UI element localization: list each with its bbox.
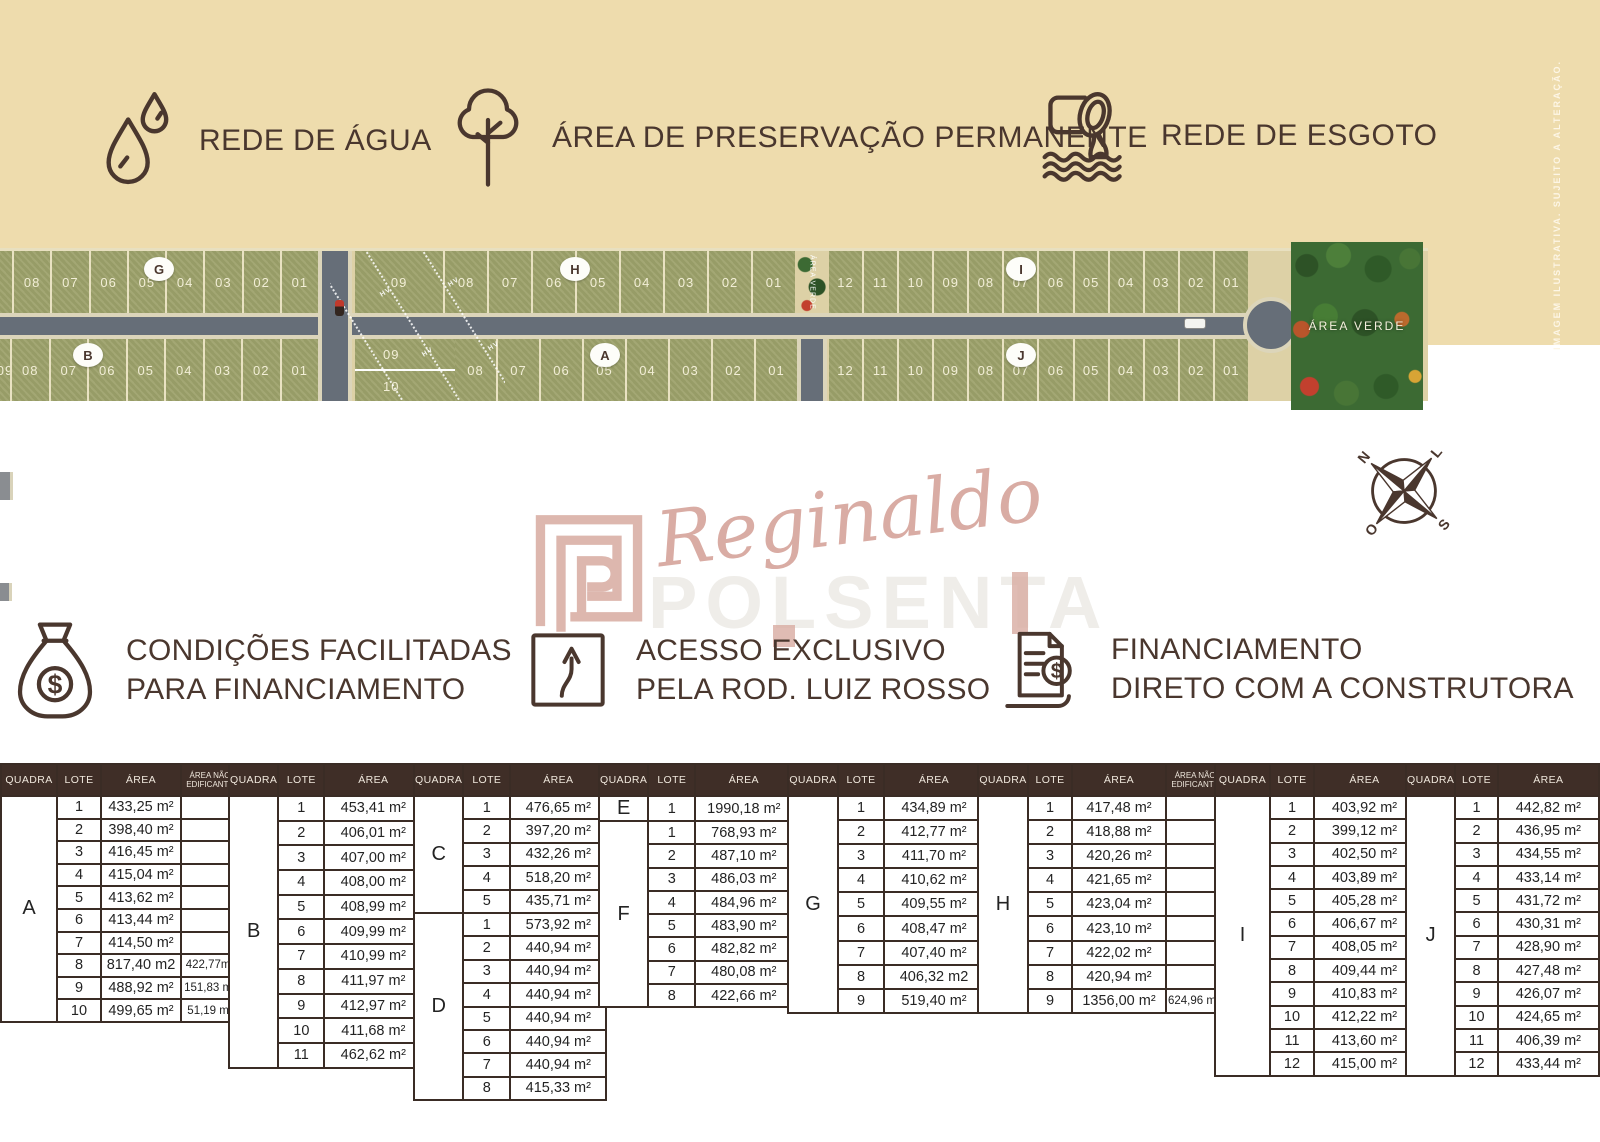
area-cell: 407,00 m²	[324, 845, 422, 870]
area-verde-forest: ÁREA VERDE	[1291, 242, 1423, 410]
lote-cell: 4	[463, 983, 510, 1006]
benefit-financing-conditions: $ CONDIÇÕES FACILITADAS PARA FINANCIAMEN…	[12, 618, 512, 722]
map-lot: 12	[829, 251, 864, 313]
quadra-label-cell: I	[1215, 796, 1270, 1076]
table-header-cell: LOTE	[278, 764, 324, 796]
map-lot: 05	[128, 339, 167, 401]
lote-cell: 11	[278, 1043, 324, 1068]
main-road	[0, 313, 1254, 339]
area-cell: 480,08 m²	[695, 961, 792, 984]
quadra-badge-I: I	[1006, 257, 1036, 281]
lote-cell: 4	[1028, 868, 1072, 892]
map-lot: 08	[969, 339, 1004, 401]
area-cell: 410,62 m²	[884, 868, 984, 892]
map-lot: 02	[713, 339, 756, 401]
lote-cell: 9	[1455, 982, 1497, 1005]
compass-south-label: S	[1435, 516, 1453, 534]
area-cell: 410,83 m²	[1314, 982, 1415, 1005]
map-lot: 03	[1145, 339, 1180, 401]
area-cell: 1990,18 m²	[695, 796, 792, 821]
map-lot: 06	[91, 251, 129, 313]
lote-cell: 1	[1028, 796, 1072, 820]
area-cell: 499,65 m²	[101, 999, 181, 1022]
lote-cell: 5	[278, 895, 324, 920]
map-lot: 01	[756, 339, 797, 401]
area-cell: 421,65 m²	[1072, 868, 1166, 892]
compass-rose: N L S O	[1345, 432, 1463, 555]
table-row: J1442,82 m²	[1406, 796, 1599, 819]
lote-cell: 1	[463, 796, 510, 819]
map-lot: 04	[166, 339, 205, 401]
table-header-cell: ÁREA	[1072, 764, 1166, 796]
area-cell: 434,55 m²	[1498, 843, 1599, 866]
area-cell: 484,96 m²	[695, 891, 792, 914]
lote-cell: 2	[463, 819, 510, 842]
table-row: D1573,92 m²	[414, 913, 606, 936]
table-row: C1476,65 m²	[414, 796, 606, 819]
area-cell: 406,39 m²	[1498, 1029, 1599, 1052]
map-lot: 02	[244, 251, 282, 313]
lote-cell: 11	[1270, 1029, 1314, 1052]
area-cell: 482,82 m²	[695, 937, 792, 960]
table-header-cell: QUADRA	[1215, 764, 1270, 796]
lote-cell: 7	[57, 932, 101, 955]
lote-cell: 6	[838, 916, 884, 940]
map-lot: 02	[1180, 339, 1215, 401]
lote-cell: 8	[57, 954, 101, 977]
area-cell: 412,22 m²	[1314, 1006, 1415, 1029]
benefit-line: PELA ROD. LUIZ ROSSO	[636, 670, 990, 709]
lote-cell: 9	[57, 977, 101, 1000]
lote-cell: 3	[463, 843, 510, 866]
table-header-cell: LOTE	[1455, 764, 1497, 796]
map-lot: 07	[52, 251, 90, 313]
benefit-line: ACESSO EXCLUSIVO	[636, 631, 990, 670]
lote-cell: 4	[463, 866, 510, 889]
area-cell: 486,03 m²	[695, 868, 792, 891]
table-row: E11990,18 m²	[599, 796, 792, 821]
map-lot: 06	[1039, 339, 1074, 401]
area-cell: 420,26 m²	[1072, 844, 1166, 868]
table-header-cell: ÁREA	[101, 764, 181, 796]
area-cell: 413,60 m²	[1314, 1029, 1415, 1052]
lote-cell: 2	[648, 844, 695, 867]
lote-cell: 1	[838, 796, 884, 820]
area-cell: 428,90 m²	[1498, 936, 1599, 959]
map-lot: 01	[1215, 251, 1248, 313]
lote-cell: 2	[278, 821, 324, 846]
lote-cell: 7	[648, 961, 695, 984]
lote-cell: 6	[463, 1030, 510, 1053]
area-cell: 422,02 m²	[1072, 941, 1166, 965]
area-cell: 440,94 m²	[510, 936, 606, 959]
quadra-table-J: QUADRALOTEÁREAJ1442,82 m²2436,95 m²3434,…	[1405, 763, 1600, 1077]
benefit-exclusive-access: ACESSO EXCLUSIVO PELA ROD. LUIZ ROSSO	[528, 630, 990, 710]
lote-cell: 8	[1270, 959, 1314, 982]
area-cell: 415,33 m²	[510, 1077, 606, 1100]
lote-cell: 3	[463, 960, 510, 983]
table-header-cell: QUADRA	[599, 764, 648, 796]
table-header-cell: LOTE	[648, 764, 695, 796]
map-lot: 07	[489, 251, 533, 313]
map-lot: 01	[282, 251, 318, 313]
cross-road-right	[797, 339, 827, 401]
area-cell: 399,12 m²	[1314, 819, 1415, 842]
lote-cell: 7	[1455, 936, 1497, 959]
map-lot: 04	[627, 339, 670, 401]
area-cell: 406,01 m²	[324, 821, 422, 846]
lote-cell: 6	[1455, 912, 1497, 935]
lote-cell: 8	[838, 965, 884, 989]
lote-cell: 7	[838, 941, 884, 965]
area-cell: 476,65 m²	[510, 796, 606, 819]
sewage-pipe-icon	[1035, 88, 1135, 184]
area-cell: 408,47 m²	[884, 916, 984, 940]
map-edge-remnant	[0, 583, 12, 601]
table-header-cell: ÁREA	[1314, 764, 1415, 796]
area-cell: 442,82 m²	[1498, 796, 1599, 819]
table-header-cell: ÁREA	[1498, 764, 1599, 796]
area-cell: 413,44 m²	[101, 909, 181, 932]
benefit-direct-financing: $ FINANCIAMENTO DIRETO COM A CONSTRUTORA	[995, 622, 1574, 716]
table-row: A1433,25 m²	[1, 796, 239, 819]
area-cell: 412,97 m²	[324, 994, 422, 1019]
cross-road-left	[318, 251, 352, 401]
lote-cell: 10	[278, 1018, 324, 1043]
area-cell: 416,45 m²	[101, 841, 181, 864]
disclaimer-text: IMAGEM ILUSTRATIVA. SUJEITO A ALTERAÇÃO.	[1552, 60, 1562, 350]
map-lot: 01	[282, 339, 319, 401]
area-verde-strip-label: ÁREA VERDE	[809, 255, 816, 310]
area-cell: 408,99 m²	[324, 895, 422, 920]
area-cell: 462,62 m²	[324, 1043, 422, 1068]
map-lot: 10	[899, 339, 934, 401]
area-cell: 440,94 m²	[510, 1007, 606, 1030]
table-header-cell: QUADRA	[788, 764, 838, 796]
lote-cell: 1	[463, 913, 510, 936]
area-cell: 434,89 m²	[884, 796, 984, 820]
lote-cell: 9	[838, 989, 884, 1013]
area-cell: 519,40 m²	[884, 989, 984, 1013]
money-bag-icon: $	[12, 618, 98, 722]
map-lot: 03	[670, 339, 713, 401]
table-header-cell: QUADRA	[1406, 764, 1455, 796]
area-cell: 405,28 m²	[1314, 889, 1415, 912]
area-cell: 518,20 m²	[510, 866, 606, 889]
area-cell: 412,77 m²	[884, 820, 984, 844]
map-lot: 09	[0, 339, 12, 401]
lote-cell: 1	[1270, 796, 1314, 819]
quadra-badge-A: A	[590, 343, 620, 367]
map-lot: 08	[12, 339, 51, 401]
table-header-cell: LOTE	[463, 764, 510, 796]
quadra-label-cell: E	[599, 796, 648, 821]
map-lot: 09	[934, 339, 969, 401]
area-cell: 420,94 m²	[1072, 965, 1166, 989]
legend-label-water: REDE DE ÁGUA	[199, 124, 432, 158]
lote-cell: 1	[648, 821, 695, 844]
map-lot: 05	[1075, 339, 1110, 401]
area-cell: 426,07 m²	[1498, 982, 1599, 1005]
table-header-cell: ÁREA	[695, 764, 792, 796]
lote-cell: 9	[1028, 989, 1072, 1013]
quadra-table-CD: QUADRALOTEÁREAC1476,65 m²2397,20 m²3432,…	[413, 763, 607, 1101]
area-cell: 411,70 m²	[884, 844, 984, 868]
lote-cell: 2	[838, 820, 884, 844]
legend-label-sewage: REDE DE ESGOTO	[1161, 119, 1438, 153]
lot-tables: QUADRALOTEÁREAÁREA NÃO EDIFICANTEA1433,2…	[0, 763, 1600, 1108]
area-cell: 408,00 m²	[324, 870, 422, 895]
lote-cell: 2	[57, 819, 101, 842]
map-lot: 10	[899, 251, 934, 313]
table-header-cell: QUADRA	[414, 764, 463, 796]
quadra-badge-B: B	[73, 343, 103, 367]
map-lot: 01	[1215, 339, 1248, 401]
area-cell: 413,62 m²	[101, 886, 181, 909]
map-lot: 11	[864, 339, 899, 401]
area-cell: 406,67 m²	[1314, 912, 1415, 935]
map-lot: 04	[1110, 339, 1145, 401]
area-cell: 410,99 m²	[324, 944, 422, 969]
area-cell: 423,10 m²	[1072, 916, 1166, 940]
area-cell: 817,40 m2	[101, 954, 181, 977]
quadra-label-cell: G	[788, 796, 838, 1013]
lote-cell: 8	[648, 984, 695, 1007]
table-row: F1768,93 m²	[599, 821, 792, 844]
quadra-label-cell: C	[414, 796, 463, 913]
lote-cell: 7	[1270, 936, 1314, 959]
area-cell: 422,66 m²	[695, 984, 792, 1007]
area-cell: 433,25 m²	[101, 796, 181, 819]
lote-cell: 5	[463, 1007, 510, 1030]
table-header-cell: LOTE	[1028, 764, 1072, 796]
area-cell: 414,50 m²	[101, 932, 181, 955]
lote-cell: 5	[838, 892, 884, 916]
area-verde-strip: ÁREA VERDE	[795, 251, 829, 313]
map-lot: 08	[455, 339, 498, 401]
area-cell: 440,94 m²	[510, 983, 606, 1006]
area-cell: 433,44 m²	[1498, 1052, 1599, 1075]
lote-cell: 8	[463, 1077, 510, 1100]
quadra-table-B: QUADRALOTEÁREAB1453,41 m²2406,01 m²3407,…	[228, 763, 423, 1069]
area-cell: 453,41 m²	[324, 796, 422, 821]
quadra-badge-H: H	[560, 257, 590, 281]
map-lot: 08	[969, 251, 1004, 313]
table-header-cell: ÁREA	[510, 764, 606, 796]
legend-item-sewage: REDE DE ESGOTO	[1035, 88, 1438, 184]
map-lot: 03	[665, 251, 709, 313]
quadra-label-cell: A	[1, 796, 57, 1022]
map-lot: 02	[1180, 251, 1215, 313]
benefit-line: PARA FINANCIAMENTO	[126, 670, 512, 709]
lote-cell: 5	[57, 886, 101, 909]
lote-cell: 4	[1270, 866, 1314, 889]
water-drops-icon	[95, 88, 173, 194]
map-lot: 02	[709, 251, 753, 313]
area-cell: 403,89 m²	[1314, 866, 1415, 889]
lote-cell: 10	[57, 999, 101, 1022]
lote-cell: 4	[278, 870, 324, 895]
table-header-cell: LOTE	[57, 764, 101, 796]
area-cell: 440,94 m²	[510, 960, 606, 983]
quadra-label-cell: D	[414, 913, 463, 1100]
company-logo-watermark	[533, 512, 645, 632]
area-cell: 423,04 m²	[1072, 892, 1166, 916]
table-header-cell: ÁREA	[324, 764, 422, 796]
lote-cell: 10	[1455, 1006, 1497, 1029]
area-cell: 398,40 m²	[101, 819, 181, 842]
area-cell: 431,72 m²	[1498, 889, 1599, 912]
area-cell: 430,31 m²	[1498, 912, 1599, 935]
map-lot: 11	[864, 251, 899, 313]
quadra-badge-G: G	[144, 257, 174, 281]
quadra-table-I: QUADRALOTEÁREAI1403,92 m²2399,12 m²3402,…	[1214, 763, 1416, 1077]
table-row: H1417,48 m²	[978, 796, 1224, 820]
lote-cell: 9	[1270, 982, 1314, 1005]
map-lot: 03	[205, 251, 243, 313]
area-cell: 436,95 m²	[1498, 819, 1599, 842]
lote-cell: 8	[1028, 965, 1072, 989]
area-cell: 1356,00 m²	[1072, 989, 1166, 1013]
area-cell: 440,94 m²	[510, 1053, 606, 1076]
area-verde-forest-label: ÁREA VERDE	[1309, 319, 1406, 333]
lote-cell: 6	[278, 919, 324, 944]
area-cell: 415,00 m²	[1314, 1052, 1415, 1075]
quadra-label-cell: B	[229, 796, 278, 1068]
lote-cell: 11	[1455, 1029, 1497, 1052]
lote-cell: 8	[1455, 959, 1497, 982]
area-cell: 487,10 m²	[695, 844, 792, 867]
map-lot: 04	[1110, 251, 1145, 313]
lote-cell: 3	[1270, 843, 1314, 866]
svg-text:$: $	[48, 670, 63, 700]
lote-cell: 2	[1270, 819, 1314, 842]
map-lot: 09	[355, 339, 455, 371]
quadra-section-I: 121110090807060504030201	[829, 251, 1248, 313]
area-cell: 409,44 m²	[1314, 959, 1415, 982]
table-header-cell: LOTE	[1270, 764, 1314, 796]
quadra-section-B: 090807060504030201	[0, 339, 318, 401]
table-row: G1434,89 m²	[788, 796, 984, 820]
lote-cell: 4	[1455, 866, 1497, 889]
lote-cell: 6	[1270, 912, 1314, 935]
lote-cell: 4	[648, 891, 695, 914]
area-cell: 409,99 m²	[324, 919, 422, 944]
map-lot: 02	[243, 339, 282, 401]
quadra-section-A: 0807060504030201	[455, 339, 797, 401]
quadra-label-cell: H	[978, 796, 1028, 1013]
lote-cell: 3	[838, 844, 884, 868]
stacked-lots-A: 0910	[355, 339, 455, 401]
lote-cell: 3	[1028, 844, 1072, 868]
lote-cell: 2	[1028, 820, 1072, 844]
area-cell: 483,90 m²	[695, 914, 792, 937]
lote-cell: 3	[1455, 843, 1497, 866]
map-lot: 12	[829, 339, 864, 401]
lote-cell: 6	[648, 937, 695, 960]
invoice-icon: $	[995, 622, 1083, 716]
table-row: I1403,92 m²	[1215, 796, 1415, 819]
benefit-line: CONDIÇÕES FACILITADAS	[126, 631, 512, 670]
lote-cell: 2	[463, 936, 510, 959]
area-cell: 418,88 m²	[1072, 820, 1166, 844]
car-icon	[1184, 318, 1206, 329]
area-cell: 433,14 m²	[1498, 866, 1599, 889]
lote-cell: 2	[1455, 819, 1497, 842]
area-cell: 406,32 m2	[884, 965, 984, 989]
quadra-table-G: QUADRALOTEÁREAG1434,89 m²2412,77 m²3411,…	[787, 763, 985, 1014]
lote-cell: 5	[463, 890, 510, 913]
quadra-table-EF: QUADRALOTEÁREAE11990,18 m²F1768,93 m²248…	[598, 763, 793, 1008]
area-cell: 411,97 m²	[324, 969, 422, 994]
lote-cell: 7	[1028, 941, 1072, 965]
table-header-cell: QUADRA	[1, 764, 57, 796]
table-header-cell: LOTE	[838, 764, 884, 796]
area-cell: 432,26 m²	[510, 843, 606, 866]
map-lot: 08	[14, 251, 52, 313]
lote-cell: 7	[463, 1053, 510, 1076]
lote-cell: 1	[278, 796, 324, 821]
lote-cell: 7	[278, 944, 324, 969]
quadra-badge-J: J	[1006, 343, 1036, 367]
lote-cell: 3	[278, 845, 324, 870]
map-lot: 05	[1075, 251, 1110, 313]
road-sign-icon	[528, 630, 608, 710]
map-lot: 03	[1145, 251, 1180, 313]
lote-cell: 1	[648, 796, 695, 821]
table-header-cell: ÁREA	[884, 764, 984, 796]
map-lot: 06	[541, 339, 584, 401]
quadra-table-A: QUADRALOTEÁREAÁREA NÃO EDIFICANTEA1433,2…	[0, 763, 240, 1023]
area-cell: 415,04 m²	[101, 864, 181, 887]
lote-cell: 5	[1270, 889, 1314, 912]
site-map: ÁREA VERDE ÁREA VERDE HVHVHVHV 080706050…	[0, 248, 1428, 401]
quadra-table-H: QUADRALOTEÁREAÁREA NÃO EDIFICANTEH1417,4…	[977, 763, 1225, 1014]
tree-icon	[450, 82, 526, 194]
map-lot: 09	[355, 251, 445, 313]
area-cell: 409,55 m²	[884, 892, 984, 916]
benefit-line: FINANCIAMENTO	[1111, 630, 1574, 669]
map-edge-remnant	[0, 472, 13, 500]
map-lot: 04	[167, 251, 205, 313]
lote-cell: 3	[648, 868, 695, 891]
area-cell: 417,48 m²	[1072, 796, 1166, 820]
area-cell: 402,50 m²	[1314, 843, 1415, 866]
motorcycle-icon	[335, 300, 344, 316]
compass-west-label: O	[1362, 521, 1381, 540]
area-cell: 573,92 m²	[510, 913, 606, 936]
area-cell: 403,92 m²	[1314, 796, 1415, 819]
lote-cell: 1	[1455, 796, 1497, 819]
lote-cell: 6	[57, 909, 101, 932]
legend-item-water: REDE DE ÁGUA	[95, 88, 432, 194]
area-cell: 408,05 m²	[1314, 936, 1415, 959]
lote-cell: 5	[1028, 892, 1072, 916]
table-header-cell: QUADRA	[229, 764, 278, 796]
lote-cell: 4	[57, 864, 101, 887]
map-lot: 08	[445, 251, 489, 313]
benefit-line: DIRETO COM A CONSTRUTORA	[1111, 669, 1574, 708]
area-cell: 407,40 m²	[884, 941, 984, 965]
map-lot: 04	[621, 251, 665, 313]
area-cell: 411,68 m²	[324, 1018, 422, 1043]
lote-cell: 3	[57, 841, 101, 864]
lote-cell: 12	[1270, 1052, 1314, 1075]
quadra-label-cell: F	[599, 821, 648, 1007]
map-lot: 07	[498, 339, 541, 401]
area-cell: 435,71 m²	[510, 890, 606, 913]
lote-cell: 4	[838, 868, 884, 892]
